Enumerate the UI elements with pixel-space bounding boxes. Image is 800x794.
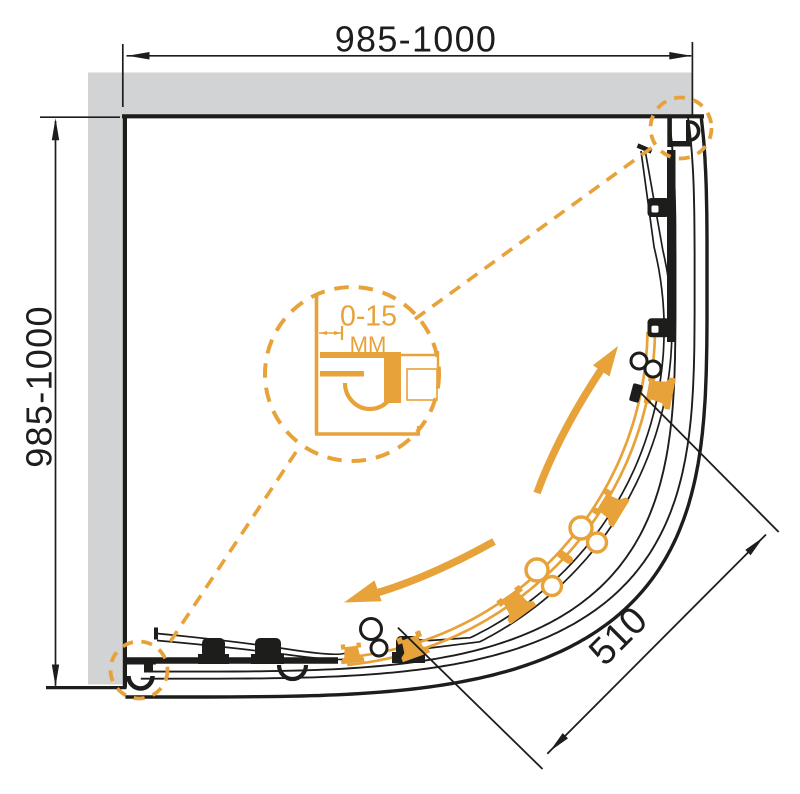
svg-text:0-15: 0-15 xyxy=(340,301,397,333)
svg-text:985-1000: 985-1000 xyxy=(19,305,60,468)
svg-text:985-1000: 985-1000 xyxy=(335,19,498,60)
